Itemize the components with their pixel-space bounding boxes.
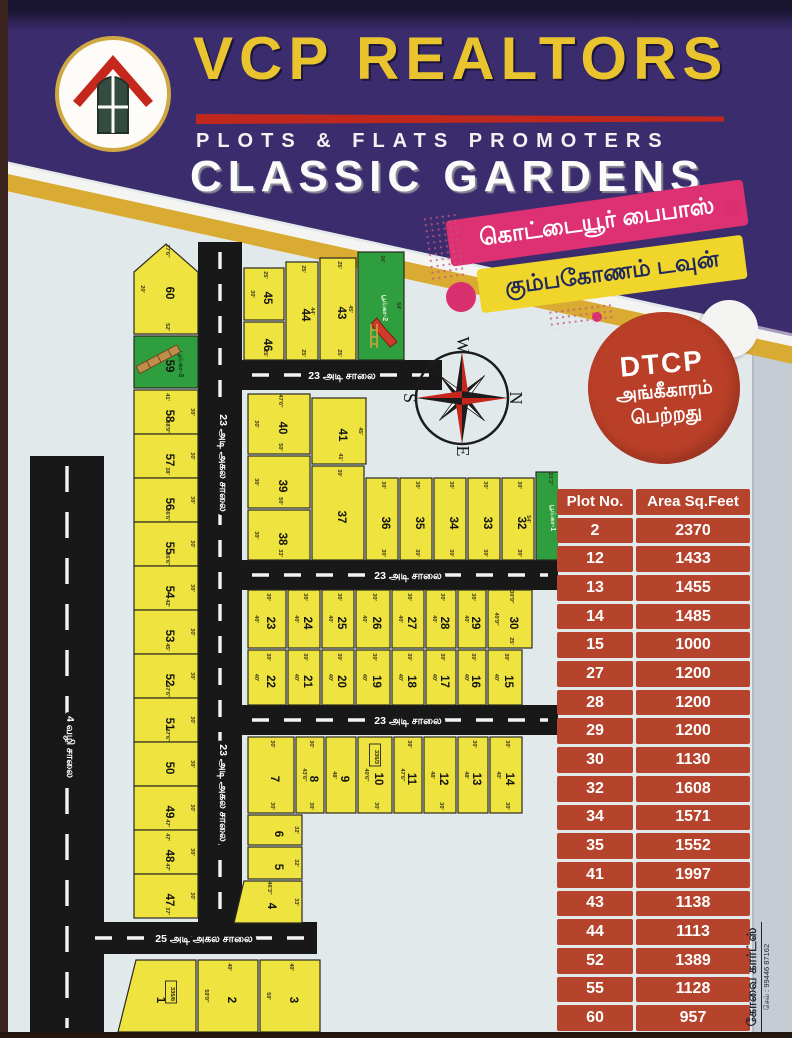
plot-dimension-label: 30' <box>265 593 271 601</box>
plot-dimension-label: 59' <box>265 992 271 1000</box>
plot-23: 2330'40' <box>248 590 286 648</box>
plot-6: 632' <box>248 815 302 845</box>
plot-no-cell: 44 <box>557 919 633 945</box>
park: 59பூங்கா-3 <box>134 336 198 388</box>
plot-no-cell: 60 <box>557 1005 633 1031</box>
plot-dimension-label: 52' <box>164 323 170 331</box>
plot-no-cell: 2 <box>557 518 633 544</box>
plot-2: 240'59'9" <box>198 960 258 1032</box>
plot-34: 3430'30' <box>434 478 466 560</box>
plot-dimension-label: 30' <box>189 804 195 812</box>
plot-number: 33 <box>481 517 493 530</box>
plot-dimension-label: 30' <box>414 481 420 489</box>
plot-17: 1730'40' <box>426 650 456 705</box>
plot-37: 3730' <box>312 466 364 560</box>
plot-dimension-label: 37' <box>164 907 170 915</box>
plot-40: 4047'6"30'50' <box>248 394 310 454</box>
area-cell: 1608 <box>636 776 750 802</box>
plot-38: 3830'33' <box>248 510 310 560</box>
plot-no-cell: 28 <box>557 690 633 716</box>
plot-dimension-label: 40'9" <box>493 612 499 626</box>
brand-title: VCP REALTORS <box>193 24 728 93</box>
plot-dimension-label: 30' <box>302 593 308 601</box>
plot-dimension-label: 41' <box>164 393 170 401</box>
area-cell: 1128 <box>636 977 750 1003</box>
plot-32: 3230'54'30' <box>502 478 534 560</box>
road-name-label: 23 அடி அகல சாலை <box>217 414 229 512</box>
plot-number: 10 <box>372 773 384 786</box>
compass-letter-w: W <box>453 337 473 354</box>
plot-number: 60 <box>163 287 175 300</box>
plot-dimension-label: 48' <box>429 771 435 779</box>
plot-dimension-label: 30' <box>249 290 255 298</box>
plot-dimension-label: 30' <box>189 716 195 724</box>
plot-dimension-label: 30' <box>308 740 314 748</box>
vcp-house-logo <box>54 35 172 153</box>
plot-dimension-label: 25' <box>336 349 342 357</box>
plot-56: 5630'36'6" <box>134 478 198 522</box>
plot-no-cell: 41 <box>557 862 633 888</box>
plot-1: 1336/8 <box>118 960 196 1032</box>
plot-dimension-label: 40' <box>361 674 367 682</box>
plot-dimension-label: 30' <box>336 593 342 601</box>
plot-number: 26 <box>370 617 382 630</box>
plot-number: 54 <box>163 586 175 599</box>
plot-number: 50 <box>163 762 175 775</box>
plot-number: 13 <box>470 773 482 786</box>
plot-30: 3030'9"40'9"25' <box>488 590 532 648</box>
plot-dimension-label: 25' <box>262 349 268 357</box>
plot-number: 21 <box>301 675 313 688</box>
plot-dimension-label: 47'6" <box>277 394 283 408</box>
plot-7: 730'30' <box>248 737 294 813</box>
plot-dimension-label: 40' <box>293 615 299 623</box>
plot-12: 1248'30' <box>424 737 456 813</box>
plot-dimension-label: 32' <box>293 859 299 867</box>
printer-name: கோவை கார்ட்ஸ் <box>744 922 761 1032</box>
plot-number: 49 <box>163 806 175 819</box>
plot-dimension-label: 40' <box>253 615 259 623</box>
plot-dimension-label: 30' <box>504 802 510 810</box>
plot-dimension-label: 42' <box>164 599 170 607</box>
plot-33: 3330'30' <box>468 478 500 560</box>
plot-dimension-label: 30' <box>189 672 195 680</box>
plot-no-cell: 12 <box>557 546 633 572</box>
plot-dimension-label: 30' <box>336 469 342 477</box>
plot-dimension-label: 30' <box>414 549 420 557</box>
plot-dimension-label: 45' <box>164 643 170 651</box>
plot-10: 1040'6"30'336/3 <box>358 737 392 813</box>
plot-22: 2230'40' <box>248 650 286 705</box>
plot-number: 16 <box>469 675 481 688</box>
plot-number: 19 <box>370 675 382 688</box>
plot-dimension-label: 30' <box>448 481 454 489</box>
plot-no-cell: 34 <box>557 805 633 831</box>
plot-dimension-label: 40' <box>361 615 367 623</box>
compass-rose: W N S E <box>400 336 524 460</box>
plot-14: 1430'40'30' <box>490 737 522 813</box>
plot-number: 5 <box>272 864 284 871</box>
decor-dot-small <box>724 200 740 216</box>
plot-dimension-label: 33' <box>293 898 299 906</box>
plot-20: 2030'40' <box>322 650 354 705</box>
plot-dimension-label: 40' <box>253 674 259 682</box>
plot-number: 36 <box>379 517 391 530</box>
plot-49: 4930'47' <box>134 786 198 830</box>
plot-dimension-label: 48' <box>331 771 337 779</box>
plot-number: 48 <box>163 850 175 863</box>
survey-number-label: 336/3 <box>373 750 379 764</box>
plot-number: 14 <box>503 773 515 786</box>
plot-dimension-label: 40' <box>495 771 501 779</box>
plot-dimension-label: 30' <box>470 593 476 601</box>
plot-dimension-label: 30' <box>504 740 510 748</box>
plot-47: 4730'37' <box>134 874 198 918</box>
plot-dimension-label: 30' <box>189 540 195 548</box>
plot-dimension-label: 30' <box>406 740 412 748</box>
plot-dimension-label: 30' <box>302 653 308 661</box>
plot-number: 47 <box>163 894 175 907</box>
plot-dimension-label: 45' <box>357 427 363 435</box>
plot-dimension-label: 30' <box>482 481 488 489</box>
plot-number: 53 <box>163 630 175 643</box>
plot-36: 3630'30' <box>366 478 398 560</box>
plot-13: 1330'48' <box>458 737 488 813</box>
area-cell: 1485 <box>636 604 750 630</box>
plot-number: 6 <box>272 831 284 837</box>
plot-no-cell: 27 <box>557 661 633 687</box>
badge-line3: பெற்றது <box>630 401 703 431</box>
plot-26: 2630'40' <box>356 590 390 648</box>
decor-dot-large <box>446 282 476 312</box>
park: பூங்கா-226'54' <box>358 252 404 360</box>
area-cell: 1200 <box>636 690 750 716</box>
plot-dimension-label: 54' <box>395 302 401 310</box>
plot-dimension-label: 30' <box>470 653 476 661</box>
plot-number: 29 <box>469 617 481 630</box>
plot-dimension-label: 48' <box>463 771 469 779</box>
park: பூங்கா-121'3" <box>536 472 558 560</box>
road-name-label: 23 அடி சாலை <box>308 370 376 382</box>
plot-number: 38 <box>276 533 288 546</box>
plot-dimension-label: 40' <box>463 674 469 682</box>
plot-43: 4325'45'25' <box>320 258 356 360</box>
plot-dimension-label: 40' <box>493 674 499 682</box>
plot-dimension-label: 47' <box>164 819 170 827</box>
plot-41: 4145'41' <box>312 398 366 464</box>
plot-60: 6027'6"20'52' <box>134 244 198 334</box>
plot-3: 340'59' <box>260 960 320 1032</box>
plot-dimension-label: 30' <box>516 549 522 557</box>
plot-dimension-label: 36'6" <box>164 552 170 566</box>
plot-dimension-label: 30' <box>189 408 195 416</box>
plot-24: 2430'40' <box>288 590 320 648</box>
plot-number: 45 <box>261 292 273 305</box>
plot-48: 4847'30'47' <box>134 830 198 874</box>
plot-dimension-label: 40' <box>226 963 232 971</box>
plot-dimension-label: 30' <box>380 481 386 489</box>
plot-dimension-label: 54' <box>525 515 531 523</box>
plot-number: 35 <box>413 517 425 530</box>
plot-dimension-label: 30' <box>406 653 412 661</box>
plot-number: 2 <box>225 997 237 1003</box>
plot-area-table: Plot No.Area Sq.Feet22370121433131455141… <box>557 489 750 1031</box>
plot-number: 9 <box>338 776 350 782</box>
poster-photo: VCP REALTORS PLOTS & FLATS PROMOTERS CLA… <box>0 0 792 1038</box>
plot-dimension-label: 30' <box>482 549 488 557</box>
park-name-label: பூங்கா-3 <box>176 351 184 378</box>
plot-dimension-label: 30' <box>269 740 275 748</box>
plot-dimension-label: 32' <box>293 826 299 834</box>
printer-phone: செல் : 99446 87162 <box>761 922 772 1032</box>
plot-no-cell: 32 <box>557 776 633 802</box>
plot-dimension-label: 36'6" <box>164 508 170 522</box>
plot-dimension-label: 25' <box>508 637 514 645</box>
plot-dimension-label: 38'9" <box>164 420 170 434</box>
plot-dimension-label: 33' <box>277 549 283 557</box>
area-cell: 1138 <box>636 891 750 917</box>
survey-number-label: 336/8 <box>169 987 175 1001</box>
plot-number: 40 <box>276 422 288 435</box>
plot-dimension-label: 40' <box>288 963 294 971</box>
plot-44: 4425'44'25' <box>286 262 318 360</box>
plot-number: 15 <box>502 675 514 688</box>
table-header-1: Area Sq.Feet <box>636 489 750 515</box>
photo-edge-left <box>0 0 8 1038</box>
plot-18: 1830'40' <box>392 650 424 705</box>
plot-39: 3930'50' <box>248 456 310 508</box>
plot-number: 12 <box>437 773 449 786</box>
plot-dimension-label: 47'6" <box>164 684 170 698</box>
plot-number: 7 <box>268 776 280 782</box>
plot-5: 532' <box>248 847 302 879</box>
plot-dimension-label: 30' <box>189 628 195 636</box>
plot-dimension-label: 40' <box>431 674 437 682</box>
area-cell: 1200 <box>636 718 750 744</box>
plot-dimension-label: 40' <box>397 674 403 682</box>
plot-dimension-label: 30'9" <box>508 590 514 604</box>
plot-no-cell: 55 <box>557 977 633 1003</box>
plot-dimension-label: 30' <box>189 496 195 504</box>
compass-letter-s: S <box>400 393 420 403</box>
road-name-label: 4 வழி சாலை <box>63 716 76 778</box>
plot-dimension-label: 30' <box>406 593 412 601</box>
area-cell: 1997 <box>636 862 750 888</box>
plot-no-cell: 13 <box>557 575 633 601</box>
plot-number: 18 <box>405 675 417 688</box>
table-header-0: Plot No. <box>557 489 633 515</box>
plot-46: 4625' <box>244 322 284 360</box>
plot-dimension-label: 43'6" <box>301 768 307 782</box>
plot-number: 20 <box>335 675 347 688</box>
plot-dimension-label: 25' <box>262 271 268 279</box>
plot-45: 4525'30' <box>244 268 284 320</box>
plot-dimension-label: 25' <box>300 349 306 357</box>
plot-dimension-label: 50' <box>277 443 283 451</box>
plot-dimension-label: 30' <box>448 549 454 557</box>
plot-number: 25 <box>335 617 347 630</box>
area-cell: 1571 <box>636 805 750 831</box>
plot-50: 5030' <box>134 742 198 786</box>
plot-dimension-label: 46'3" <box>266 881 272 895</box>
plot-dimension-label: 30' <box>253 531 259 539</box>
plot-54: 5430'42' <box>134 566 198 610</box>
plot-dimension-label: 30' <box>308 802 314 810</box>
plot-dimension-label: 30' <box>371 593 377 601</box>
photo-edge-bottom <box>0 1032 792 1038</box>
plot-no-cell: 52 <box>557 948 633 974</box>
plot-11: 1130'47'6" <box>394 737 422 813</box>
plot-57: 5730'38' <box>134 434 198 478</box>
plot-dimension-label: 30' <box>516 481 522 489</box>
plot-dimension-label: 44' <box>309 307 315 315</box>
plot-55: 5530'36'6" <box>134 522 198 566</box>
plot-dimension-label: 41' <box>337 453 343 461</box>
plot-9: 948' <box>326 737 356 813</box>
plot-dimension-label: 26' <box>379 255 385 263</box>
area-cell: 1113 <box>636 919 750 945</box>
plot-number: 1 <box>154 997 166 1004</box>
plot-number: 11 <box>405 773 417 786</box>
plot-dimension-label: 40' <box>397 615 403 623</box>
plot-29: 2930'40' <box>458 590 486 648</box>
plot-number: 39 <box>276 480 288 493</box>
plot-dimension-label: 47' <box>164 863 170 871</box>
plot-number: 23 <box>264 617 276 630</box>
plot-number: 37 <box>335 511 347 524</box>
plot-number: 28 <box>438 617 450 630</box>
plot-dimension-label: 21'3" <box>547 472 553 486</box>
plot-dimension-label: 30' <box>471 740 477 748</box>
plot-number: 34 <box>447 517 459 530</box>
plot-dimension-label: 40' <box>293 674 299 682</box>
park-name-label: பூங்கா-2 <box>380 295 388 322</box>
plot-dimension-label: 38' <box>164 467 170 475</box>
plot-dimension-label: 30' <box>189 892 195 900</box>
plot-dimension-label: 25' <box>336 261 342 269</box>
area-cell: 2370 <box>636 518 750 544</box>
plot-dimension-label: 40'6" <box>363 768 369 782</box>
plot-dimension-label: 30' <box>265 653 271 661</box>
plot-dimension-label: 30' <box>189 452 195 460</box>
plot-dimension-label: 30' <box>438 802 444 810</box>
plot-dimension-label: 47'6" <box>399 768 405 782</box>
plot-16: 1630'40' <box>458 650 486 705</box>
plot-no-cell: 30 <box>557 747 633 773</box>
plot-28: 2830'40' <box>426 590 456 648</box>
plot-dimension-label: 30' <box>253 420 259 428</box>
plot-no-cell: 43 <box>557 891 633 917</box>
plot-52: 5230'47'6" <box>134 654 198 698</box>
plot-dimension-label: 30' <box>503 653 509 661</box>
plot-25: 2530'40' <box>322 590 354 648</box>
plot-21: 2130'40' <box>288 650 320 705</box>
plot-dimension-label: 30' <box>439 593 445 601</box>
plot-dimension-label: 25' <box>300 265 306 273</box>
plot-dimension-label: 30' <box>269 802 275 810</box>
road-name-label: 23 அடி அகல சாலை <box>217 744 229 842</box>
plot-number: 27 <box>405 617 417 630</box>
area-cell: 1455 <box>636 575 750 601</box>
plot-number: 43 <box>335 307 347 320</box>
plot-dimension-label: 30' <box>189 760 195 768</box>
plot-dimension-label: 59'9" <box>203 989 209 1003</box>
plot-dimension-label: 30' <box>189 584 195 592</box>
area-cell: 1552 <box>636 833 750 859</box>
plot-no-cell: 14 <box>557 604 633 630</box>
plot-no-cell: 35 <box>557 833 633 859</box>
plot-51: 5130'47'6" <box>134 698 198 742</box>
road-name-label: 25 அடி அகல சாலை <box>155 933 253 945</box>
plot-58: 5841'30'38'9" <box>134 390 198 434</box>
plot-dimension-label: 20' <box>139 285 145 293</box>
plot-number: 4 <box>265 903 277 910</box>
area-cell: 1200 <box>636 661 750 687</box>
plot-dimension-label: 30' <box>371 653 377 661</box>
plot-53: 5330'45' <box>134 610 198 654</box>
plot-number: 30 <box>507 617 519 630</box>
plot-dimension-label: 30' <box>336 653 342 661</box>
road-name-label: 23 அடி சாலை <box>374 715 442 727</box>
plot-number: 17 <box>438 675 450 688</box>
plot-dimension-label: 50' <box>277 497 283 505</box>
plot-dimension-label: 40' <box>463 615 469 623</box>
area-cell: 957 <box>636 1005 750 1031</box>
plot-number: 41 <box>336 429 348 442</box>
plot-number: 8 <box>307 776 319 783</box>
plot-dimension-label: 40' <box>327 615 333 623</box>
area-cell: 1389 <box>636 948 750 974</box>
plot-dimension-label: 45' <box>347 305 353 313</box>
plot-dimension-label: 27'6" <box>164 244 170 258</box>
plot-dimension-label: 30' <box>380 549 386 557</box>
plot-number: 3 <box>287 997 299 1003</box>
park-name-label: பூங்கா-1 <box>548 505 556 532</box>
plot-19: 1930'40' <box>356 650 390 705</box>
plot-number: 57 <box>163 454 175 467</box>
plot-number: 22 <box>264 675 276 688</box>
plot-no-cell: 29 <box>557 718 633 744</box>
plot-dimension-label: 40' <box>327 674 333 682</box>
plot-dimension-label: 30' <box>253 478 259 486</box>
plot-dimension-label: 40' <box>431 615 437 623</box>
plot-35: 3530'30' <box>400 478 432 560</box>
area-cell: 1000 <box>636 632 750 658</box>
area-cell: 1130 <box>636 747 750 773</box>
plot-number: 24 <box>301 617 313 630</box>
plot-no-cell: 15 <box>557 632 633 658</box>
plot-number: 59 <box>163 360 175 373</box>
plot-8: 830'43'6"30' <box>296 737 324 813</box>
compass-letter-e: E <box>453 446 473 457</box>
plot-dimension-label: 30' <box>189 848 195 856</box>
plot-27: 2730'40' <box>392 590 424 648</box>
area-cell: 1433 <box>636 546 750 572</box>
plot-dimension-label: 47'6" <box>164 728 170 742</box>
plot-dimension-label: 30' <box>439 653 445 661</box>
brand-tagline: PLOTS & FLATS PROMOTERS <box>196 130 670 153</box>
road-name-label: 23 அடி சாலை <box>374 570 442 582</box>
plot-dimension-label: 30' <box>373 802 379 810</box>
plot-15: 1530'40' <box>488 650 522 705</box>
plot-4: 446'3"33' <box>234 881 302 923</box>
plot-dimension-label: 47' <box>164 833 170 841</box>
compass-letter-n: N <box>506 392 524 405</box>
printer-contact: கோவை கார்ட்ஸ் செல் : 99446 87162 <box>744 922 772 1032</box>
